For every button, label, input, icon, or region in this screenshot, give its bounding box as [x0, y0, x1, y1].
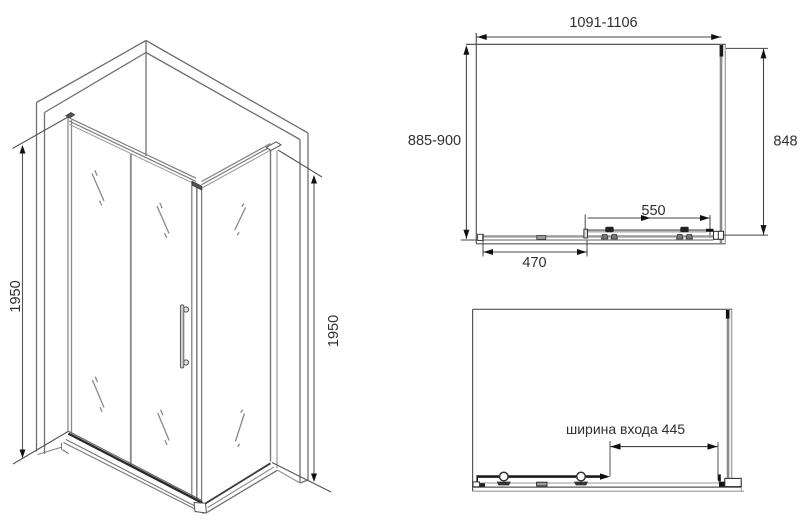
svg-text:470: 470 [522, 255, 546, 271]
svg-text:550: 550 [641, 203, 665, 219]
svg-text:885-900: 885-900 [408, 133, 461, 149]
svg-text:1950: 1950 [8, 280, 24, 312]
svg-text:ширина входа 445: ширина входа 445 [566, 421, 685, 437]
svg-text:1950: 1950 [326, 315, 342, 347]
svg-text:848: 848 [773, 134, 797, 150]
svg-text:1091-1106: 1091-1106 [569, 15, 637, 31]
